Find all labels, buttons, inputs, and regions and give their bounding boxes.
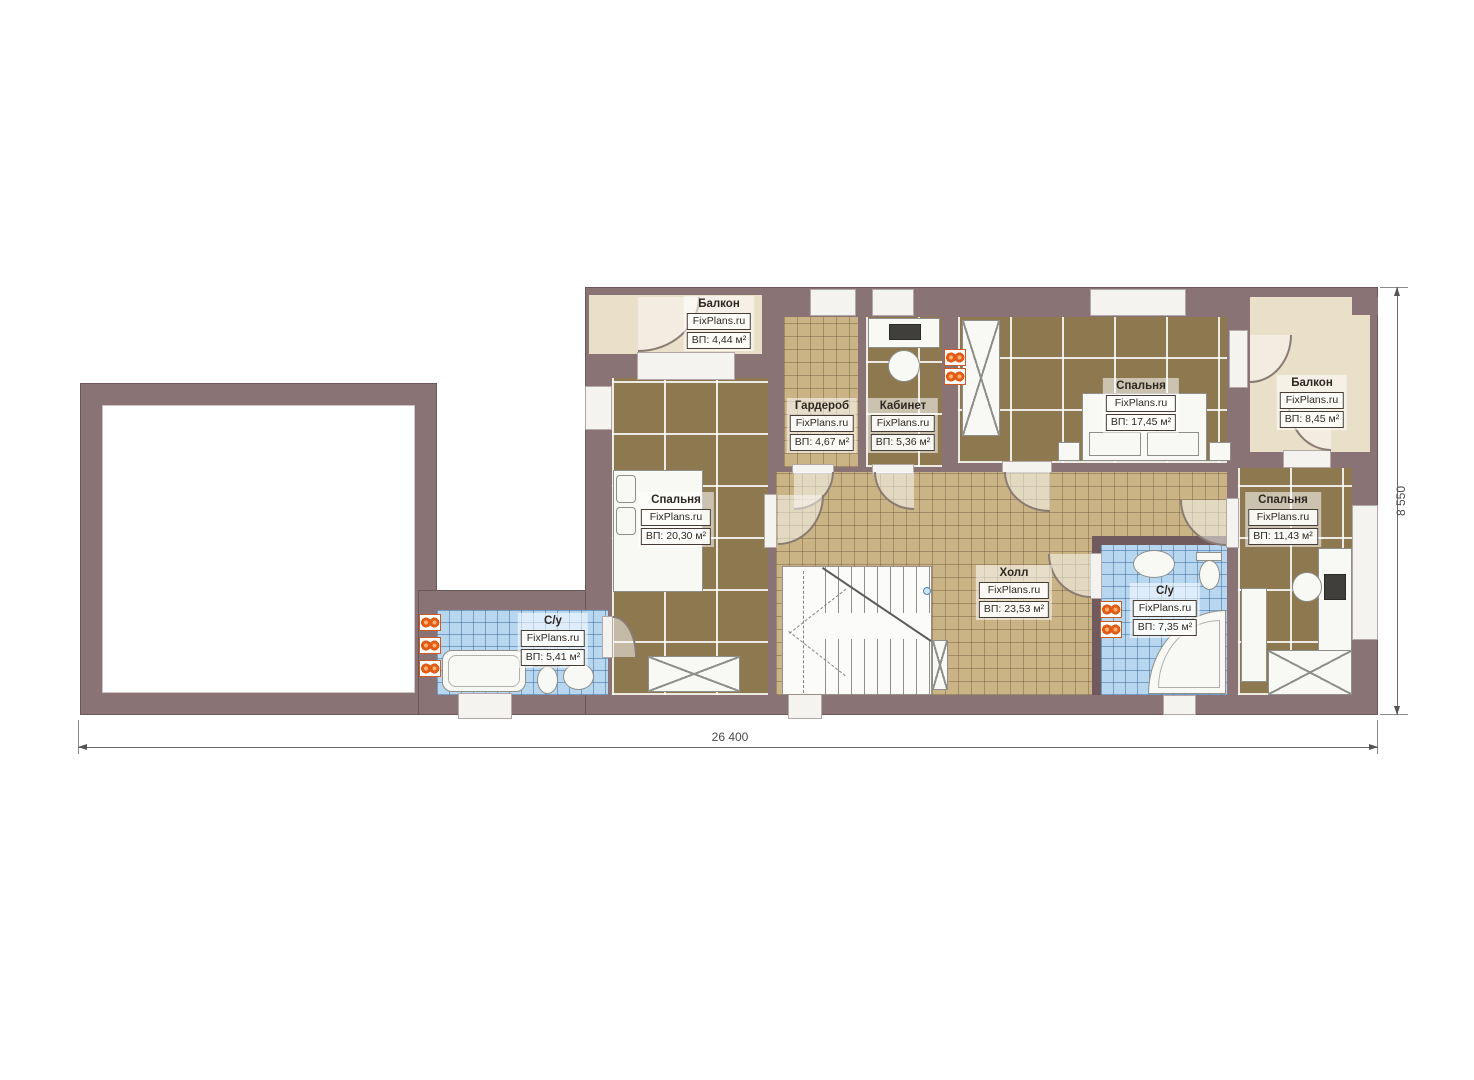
- stair-start-dot: [923, 587, 931, 595]
- room-area: ВП: 4,44 м²: [687, 332, 751, 349]
- window: [585, 386, 612, 430]
- room-area: ВП: 11,43 м²: [1248, 528, 1318, 545]
- room-area: ВП: 7,35 м²: [1133, 619, 1197, 636]
- door-opening: [1283, 450, 1331, 468]
- bathtub-inner: [448, 655, 520, 687]
- room-label-balcony-top-left: Балкон FixPlans.ru ВП: 4,44 м²: [684, 296, 754, 351]
- radiator: [419, 614, 441, 631]
- room-name: Спальня: [1106, 380, 1176, 393]
- office-chair: [1292, 572, 1322, 602]
- dimension-label-bottom: 26 400: [712, 730, 749, 744]
- room-area: ВП: 20,30 м²: [641, 528, 711, 545]
- room-name: Кабинет: [871, 400, 935, 413]
- room-name: Спальня: [641, 494, 711, 507]
- pillow: [616, 507, 636, 535]
- entry-threshold: [788, 693, 822, 719]
- room-label-bathroom-right: С/у FixPlans.ru ВП: 7,35 м²: [1130, 583, 1200, 638]
- annex-interior: [102, 405, 415, 693]
- room-label-wardrobe: Гардероб FixPlans.ru ВП: 4,67 м²: [787, 398, 857, 453]
- window: [810, 289, 856, 316]
- room-brand: FixPlans.ru: [1133, 600, 1197, 617]
- hall-closet: [932, 640, 948, 690]
- stair-flight-lower: [825, 639, 931, 695]
- radiator: [944, 368, 966, 385]
- pillow: [616, 475, 636, 503]
- wardrobe: [962, 320, 1000, 436]
- room-name: С/у: [521, 615, 585, 628]
- room-name: С/у: [1133, 585, 1197, 598]
- room-brand: FixPlans.ru: [790, 415, 854, 432]
- dimension-label-right: 8 550: [1394, 486, 1408, 516]
- cabinet: [1241, 588, 1267, 682]
- toilet: [537, 666, 558, 694]
- dimension-arrow: [1394, 287, 1400, 296]
- laptop: [889, 324, 921, 340]
- room-label-balcony-right: Балкон FixPlans.ru ВП: 8,45 м²: [1277, 375, 1347, 430]
- room-name: Холл: [979, 567, 1049, 580]
- dimension-arrow: [1394, 706, 1400, 715]
- room-area: ВП: 5,41 м²: [521, 649, 585, 666]
- sink: [1133, 550, 1175, 578]
- monitor: [1324, 574, 1346, 600]
- dimension-arrow: [78, 744, 87, 750]
- desk: [1318, 548, 1352, 660]
- radiator: [1100, 601, 1122, 618]
- wardrobe: [1268, 650, 1352, 695]
- room-area: ВП: 8,45 м²: [1280, 411, 1344, 428]
- dimension-line-bottom: [78, 747, 1378, 748]
- room-area: ВП: 4,67 м²: [790, 434, 854, 451]
- door-opening: [602, 616, 613, 658]
- room-brand: FixPlans.ru: [641, 509, 711, 526]
- room-brand: FixPlans.ru: [521, 630, 585, 647]
- radiator: [944, 349, 966, 366]
- room-brand: FixPlans.ru: [687, 313, 751, 330]
- room-label-bathroom-left: С/у FixPlans.ru ВП: 5,41 м²: [518, 613, 588, 668]
- toilet: [1199, 560, 1220, 590]
- radiator: [1100, 621, 1122, 638]
- office-chair: [888, 350, 920, 382]
- room-area: ВП: 5,36 м²: [871, 434, 935, 451]
- floor-plan-canvas: Балкон FixPlans.ru ВП: 4,44 м² Гардероб …: [0, 0, 1474, 1080]
- radiator: [419, 637, 441, 654]
- room-brand: FixPlans.ru: [871, 415, 935, 432]
- entry-threshold: [458, 693, 512, 719]
- door-opening: [1090, 553, 1102, 599]
- room-brand: FixPlans.ru: [979, 582, 1049, 599]
- window: [1352, 505, 1378, 640]
- room-label-bedroom-left: Спальня FixPlans.ru ВП: 20,30 м²: [638, 492, 714, 547]
- room-label-hall: Холл FixPlans.ru ВП: 23,53 м²: [976, 565, 1052, 620]
- window: [1090, 289, 1186, 316]
- room-name: Балкон: [1280, 377, 1344, 390]
- window: [872, 289, 914, 316]
- nightstand: [1058, 442, 1080, 461]
- nightstand: [1209, 442, 1231, 461]
- window: [1163, 695, 1196, 715]
- wardrobe: [648, 656, 740, 692]
- door-opening: [1229, 330, 1248, 388]
- room-label-bedroom-top: Спальня FixPlans.ru ВП: 17,45 м²: [1103, 378, 1179, 433]
- stair-guide-dashed: [803, 571, 804, 693]
- room-name: Гардероб: [790, 400, 854, 413]
- door-opening: [764, 494, 777, 548]
- radiator: [419, 660, 441, 677]
- room-label-bedroom-right: Спальня FixPlans.ru ВП: 11,43 м²: [1245, 492, 1321, 547]
- room-area: ВП: 23,53 м²: [979, 601, 1049, 618]
- room-name: Балкон: [687, 298, 751, 311]
- room-brand: FixPlans.ru: [1280, 392, 1344, 409]
- room-brand: FixPlans.ru: [1248, 509, 1318, 526]
- bed-cushion: [1089, 432, 1141, 456]
- balcony-door-threshold: [637, 352, 735, 380]
- room-name: Спальня: [1248, 494, 1318, 507]
- door-opening: [1226, 498, 1239, 548]
- balcony-corner-post: [1352, 297, 1378, 315]
- dimension-arrow: [1369, 744, 1378, 750]
- room-brand: FixPlans.ru: [1106, 395, 1176, 412]
- room-label-office: Кабинет FixPlans.ru ВП: 5,36 м²: [868, 398, 938, 453]
- staircase: [782, 566, 932, 695]
- room-area: ВП: 17,45 м²: [1106, 414, 1176, 431]
- bed-cushion: [1147, 432, 1199, 456]
